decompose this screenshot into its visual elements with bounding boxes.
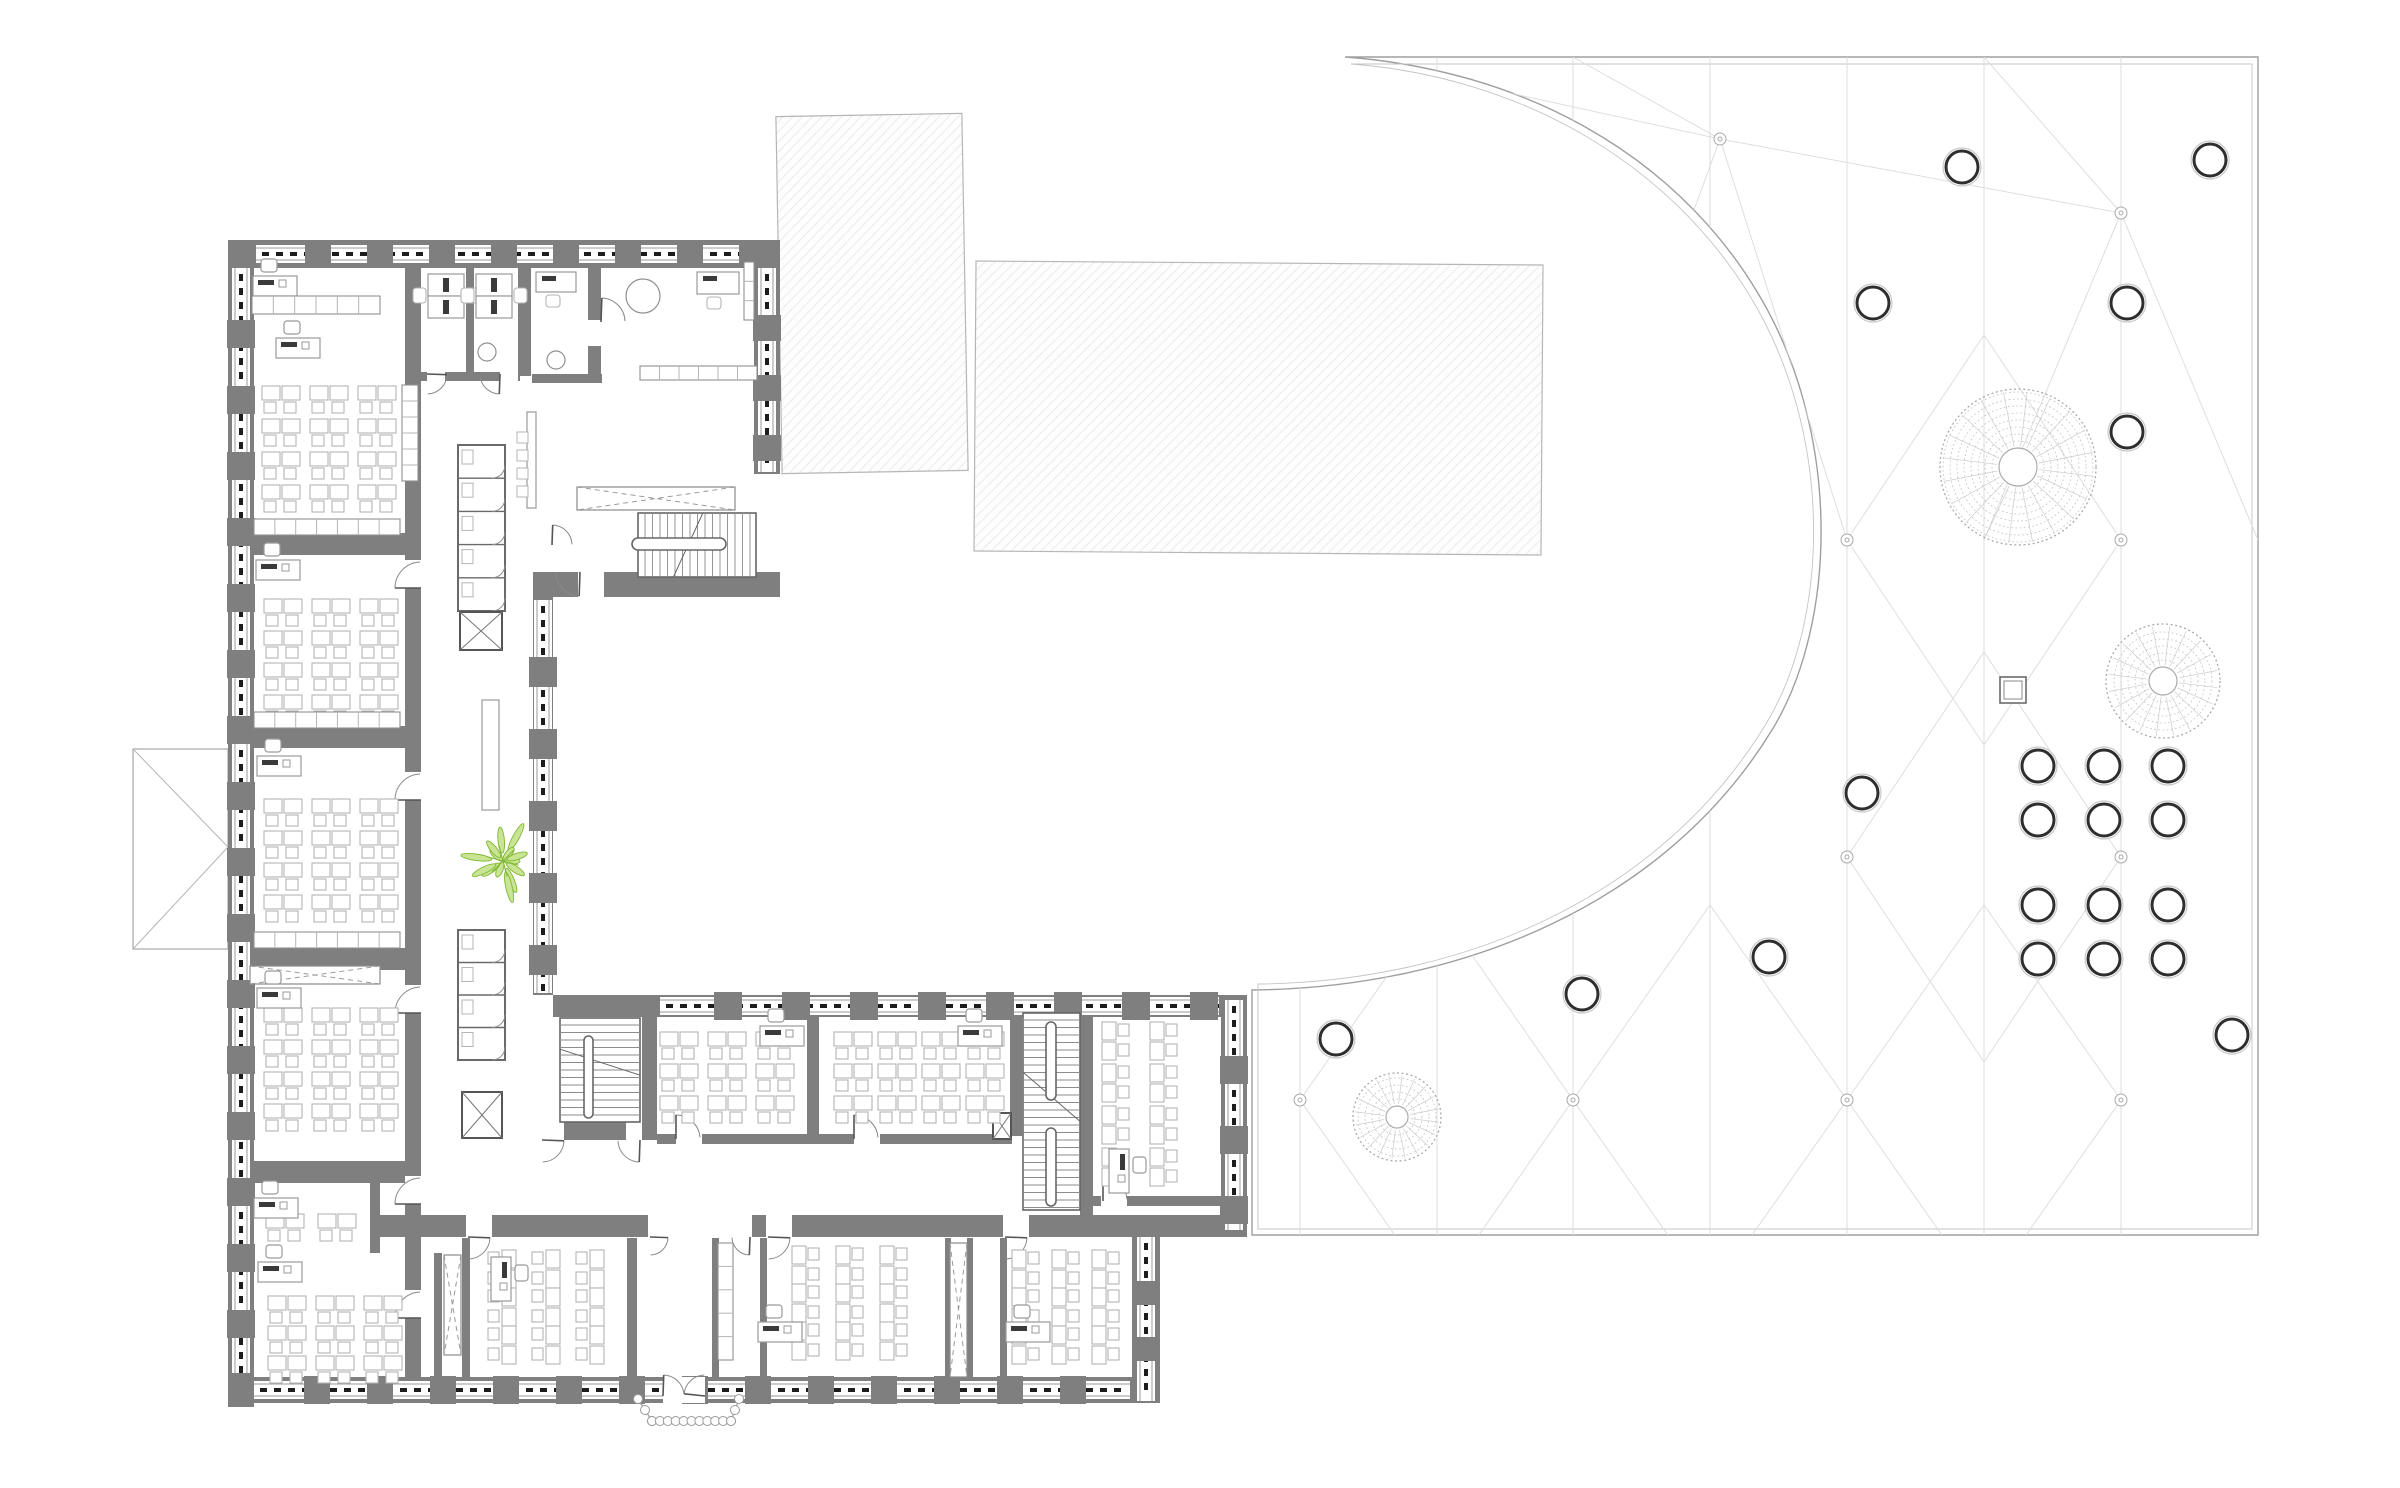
hatched-building [776,113,968,473]
planter-square-icon [2000,677,2026,703]
stool-icon [517,468,528,479]
tree-circle-icon [2213,1016,2251,1054]
mesh-node-icon [1841,534,1853,546]
stool-icon [517,486,528,497]
mesh-node-icon [1841,851,1853,863]
staircase [1023,1013,1080,1210]
tree-circle-icon [2149,886,2187,924]
mesh-node-icon [2115,851,2127,863]
shelf-counter [402,385,418,481]
shelf-counter [744,262,754,320]
mesh-node-icon [1841,1094,1853,1106]
wardrobe-strip-icon [950,1243,967,1377]
wardrobe-strip-icon [444,1255,461,1355]
stool-icon [517,450,528,461]
elevator-shaft-icon [460,612,502,650]
tree-circle-icon [2149,940,2187,978]
floor-plan-page [0,0,2400,1488]
shelf-counter [254,932,400,948]
shelf-counter [252,296,380,314]
mesh-node-icon [2115,534,2127,546]
tree-circle-icon [2108,413,2146,451]
tree-circle-icon [2108,284,2146,322]
shelf-counter [254,519,400,535]
shelf-counter [254,712,400,728]
tree-circle-icon [2085,747,2123,785]
tree-circle-icon [2191,141,2229,179]
tree-circle-icon [1854,284,1892,322]
hatched-building [974,261,1543,555]
shelf-counter [640,366,757,380]
mesh-node-icon [2115,1094,2127,1106]
gabled-roof-building [133,749,228,949]
tree-circle-icon [1843,774,1881,812]
shelf-counter [718,1243,733,1360]
round-table-icon [547,351,565,369]
round-table-icon [478,343,496,361]
tree-circle-icon [2149,747,2187,785]
tree-circle-icon [2019,886,2057,924]
stool-icon [517,432,528,443]
tree-circle-icon [2019,940,2057,978]
mesh-node-icon [1294,1094,1306,1106]
tree-circle-icon [2019,801,2057,839]
tree-circle-icon [1943,148,1981,186]
mesh-node-icon [2115,207,2127,219]
mesh-node-icon [1567,1094,1579,1106]
tree-circle-icon [2085,886,2123,924]
elevator-shaft-icon [462,1092,502,1138]
tree-circle-icon [2149,801,2187,839]
tree-circle-icon [2085,801,2123,839]
tree-circle-icon [1563,975,1601,1013]
staircase [560,1018,640,1122]
staircase [632,513,756,577]
wc-stalls [458,930,505,1060]
floor-plan-canvas [0,0,2400,1488]
corridor-bench [482,700,499,810]
tree-circle-icon [1750,938,1788,976]
mesh-node-icon [1714,133,1726,145]
tree-circle-icon [2019,747,2057,785]
tree-circle-icon [2085,940,2123,978]
wardrobe-strip-icon [577,487,735,510]
wc-stalls [458,445,505,611]
tree-circle-icon [1317,1020,1355,1058]
round-table-icon [626,279,660,313]
